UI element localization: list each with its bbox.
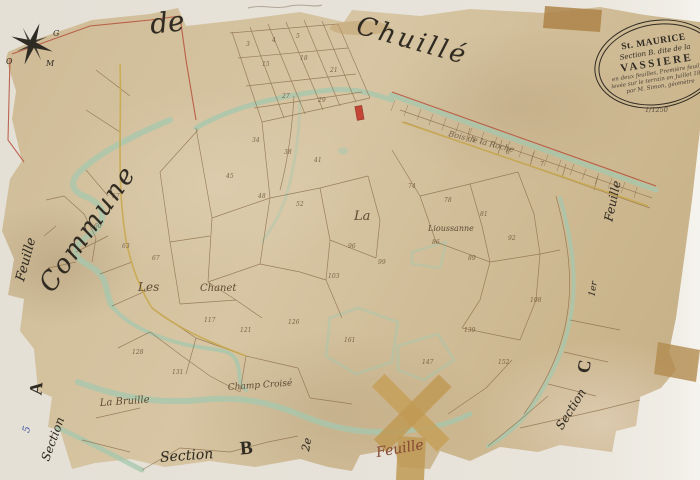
parcel-number: 67 xyxy=(152,255,160,262)
parcel-number: 117 xyxy=(204,317,216,324)
cartouche-note-3: par M. Simon, géomètre xyxy=(626,78,696,96)
parcel-number: 74 xyxy=(408,183,416,190)
parcel-number: 131 xyxy=(172,369,183,376)
parcel-number: 103 xyxy=(328,273,340,280)
parcel-number: 7 xyxy=(540,161,544,168)
top-edge-flourish xyxy=(248,5,322,8)
scanned-cadastral-map: G O M 3 4 5 15 18 21 27 29 34 38 41 45 xyxy=(0,0,700,480)
parcel-number: 96 xyxy=(348,243,356,250)
parcel-number: 41 xyxy=(313,157,322,164)
parcel-number: 4 xyxy=(271,37,276,44)
parcel-number: 128 xyxy=(132,349,144,356)
parcel-number: 78 xyxy=(444,197,452,204)
parcel-number: 52 xyxy=(296,201,304,208)
road-lines xyxy=(120,64,648,356)
cartouche-section-name: VASSIERE xyxy=(619,51,694,74)
compass-letter-se: M xyxy=(45,59,55,68)
cartouche-note-2: levée sur le terrain en Juillet 1839 xyxy=(611,69,700,91)
compass-letter-ne: G xyxy=(53,29,60,38)
parcel-number: 81 xyxy=(480,211,488,218)
label-left-letter-a: A xyxy=(25,381,47,396)
label-de: de xyxy=(148,4,186,40)
parcel-number: 108 xyxy=(530,297,542,304)
parcel-number: 34 xyxy=(252,137,260,144)
cartouche-scale: 1/1250 xyxy=(645,106,668,114)
place-name-lioussanne: Lioussanne xyxy=(427,224,474,233)
label-bottom-deuxieme: 2e xyxy=(299,437,314,453)
place-name-champ: Champ Croisé xyxy=(227,377,293,393)
cartouche-subtitle: Section B. dite de la xyxy=(619,42,691,61)
parcel-number: 45 xyxy=(225,173,234,180)
parcel-number: 29 xyxy=(317,97,326,104)
parcel-number: 89 xyxy=(468,255,476,262)
parcel-number: 38 xyxy=(284,149,292,156)
parcel-number: 121 xyxy=(240,327,251,334)
parcel-number: 92 xyxy=(508,235,516,242)
cartouche-title: St. MAURICE xyxy=(621,32,687,52)
parcel-number: 126 xyxy=(288,319,300,326)
parcel-number: 3 xyxy=(246,41,250,48)
parcel-number: 63 xyxy=(122,243,130,250)
label-bottom-letter-b: B xyxy=(239,437,254,460)
parcel-number: 27 xyxy=(281,93,290,100)
place-name-bruille: La Bruille xyxy=(98,395,150,410)
parcel-number: 15 xyxy=(262,61,270,68)
parcel-number: 161 xyxy=(344,337,355,344)
building-marker xyxy=(355,105,364,120)
parcel-number: 139 xyxy=(464,327,476,334)
parcel-number: 5 xyxy=(296,33,300,40)
parcel-number: 21 xyxy=(329,67,338,74)
red-boundary-lines xyxy=(8,16,656,186)
place-name-chanet: Chanet xyxy=(200,283,237,294)
parcel-number: 152 xyxy=(498,359,510,366)
parcel-number: 86 xyxy=(432,239,440,246)
parcel-number: 18 xyxy=(300,55,308,62)
parcel-number: 48 xyxy=(257,193,266,200)
place-name-la: La xyxy=(353,209,370,224)
parcel-number: 147 xyxy=(422,359,434,366)
parcel-number: 99 xyxy=(378,259,386,266)
place-name-les: Les xyxy=(137,280,159,294)
cartouche-note-1: en deux feuilles, Première feuille xyxy=(612,62,700,84)
compass-letter-w: O xyxy=(6,57,13,66)
parcel-numbers: 3 4 5 15 18 21 27 29 34 38 41 45 48 52 5… xyxy=(94,33,544,376)
